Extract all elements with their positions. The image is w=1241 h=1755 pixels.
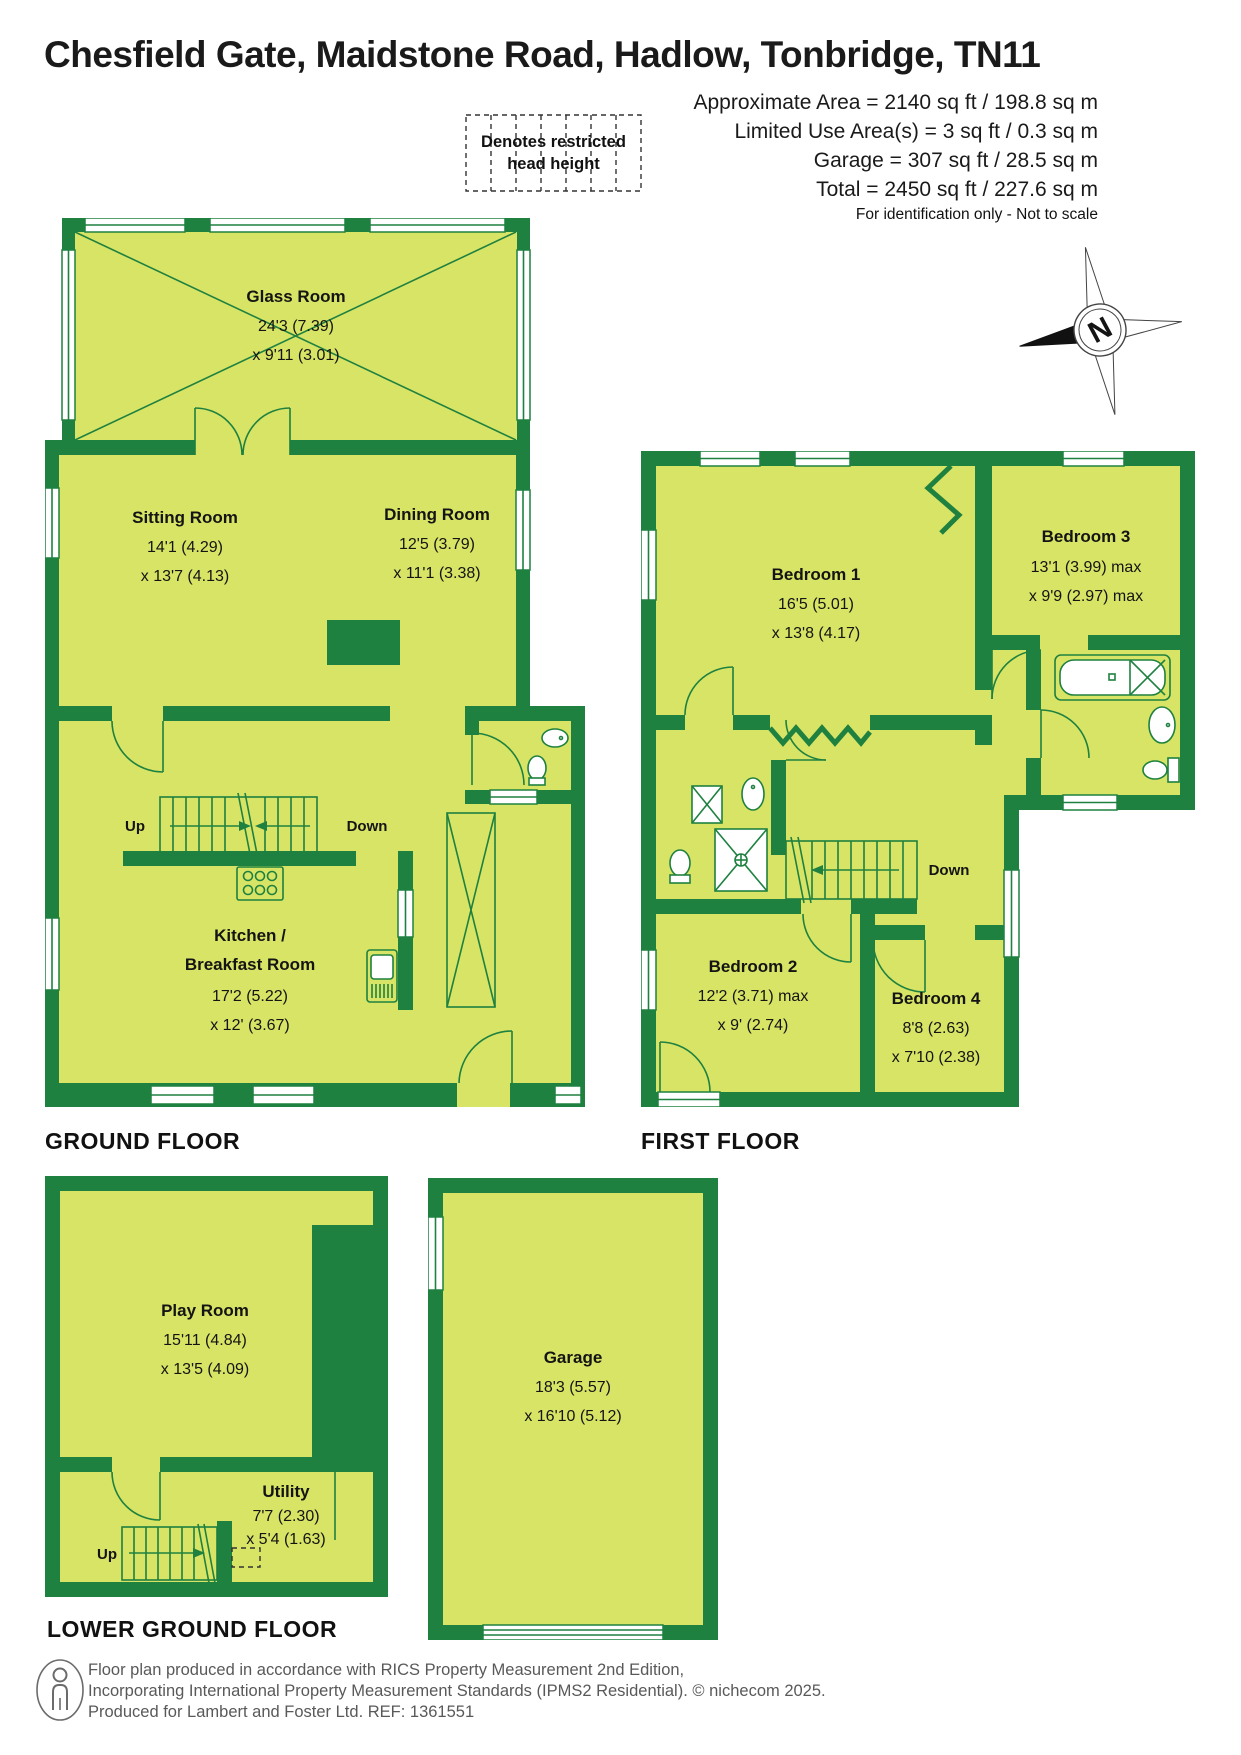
ensuite-basin-icon bbox=[742, 778, 764, 810]
svg-text:x 13'5 (4.09): x 13'5 (4.09) bbox=[161, 1361, 249, 1378]
glass-room-label: Glass Room bbox=[246, 287, 345, 306]
svg-text:17'2 (5.22): 17'2 (5.22) bbox=[212, 988, 288, 1005]
svg-text:x 9'9 (2.97) max: x 9'9 (2.97) max bbox=[1029, 588, 1143, 605]
chimney-breast bbox=[327, 620, 400, 665]
bedroom4-label: Bedroom 4 bbox=[892, 989, 981, 1008]
stairs-down-label: Down bbox=[347, 818, 388, 835]
bedroom2-label: Bedroom 2 bbox=[709, 957, 798, 976]
svg-text:16'5 (5.01): 16'5 (5.01) bbox=[778, 596, 854, 613]
lower-ground-floor-plan: Play Room 15'11 (4.84) x 13'5 (4.09) Uti… bbox=[45, 1176, 388, 1597]
svg-text:7'7 (2.30): 7'7 (2.30) bbox=[252, 1508, 319, 1525]
svg-text:12'5 (3.79): 12'5 (3.79) bbox=[399, 536, 475, 553]
legend-text: Denotes restricted head height bbox=[465, 131, 642, 175]
svg-text:15'11 (4.84): 15'11 (4.84) bbox=[163, 1332, 247, 1349]
svg-text:x 13'8 (4.17): x 13'8 (4.17) bbox=[772, 625, 860, 642]
svg-text:x 9'11 (3.01): x 9'11 (3.01) bbox=[252, 347, 339, 364]
bathroom-basin-icon bbox=[1149, 707, 1175, 743]
hob-icon bbox=[237, 867, 283, 900]
footer-line-1: Floor plan produced in accordance with R… bbox=[88, 1660, 1188, 1681]
shower-icon bbox=[715, 829, 767, 891]
ground-floor-plan: Glass Room 24'3 (7.39) x 9'11 (3.01) Sit… bbox=[45, 218, 585, 1107]
svg-text:18'3 (5.57): 18'3 (5.57) bbox=[535, 1379, 611, 1396]
sitting-room-label: Sitting Room bbox=[132, 508, 238, 527]
lower-ground-floor-label: LOWER GROUND FLOOR bbox=[47, 1616, 337, 1643]
wc-basin-icon bbox=[542, 729, 568, 747]
footer-line-2: Incorporating International Property Mea… bbox=[88, 1681, 1188, 1702]
svg-text:13'1 (3.99) max: 13'1 (3.99) max bbox=[1031, 559, 1142, 576]
svg-text:x 9' (2.74): x 9' (2.74) bbox=[718, 1017, 789, 1034]
first-floor-plan: Bedroom 1 16'5 (5.01) x 13'8 (4.17) Bedr… bbox=[641, 451, 1195, 1107]
footer-line-3: Produced for Lambert and Foster Ltd. REF… bbox=[88, 1702, 1188, 1723]
ensuite-cupboard-icon bbox=[692, 786, 722, 823]
svg-text:x 11'1 (3.38): x 11'1 (3.38) bbox=[393, 565, 480, 582]
lower-stairs-up-label: Up bbox=[97, 1546, 117, 1563]
bedroom1-label: Bedroom 1 bbox=[772, 565, 861, 584]
svg-text:x 12' (3.67): x 12' (3.67) bbox=[210, 1017, 290, 1034]
ensuite-toilet-icon bbox=[670, 850, 690, 883]
first-stairs-down-label: Down bbox=[929, 862, 970, 879]
restricted-head-height-legend: Denotes restricted head height bbox=[465, 114, 642, 192]
svg-text:12'2 (3.71) max: 12'2 (3.71) max bbox=[698, 988, 809, 1005]
kitchen-sink-icon bbox=[367, 950, 397, 1002]
bathroom-toilet-icon bbox=[1143, 758, 1179, 782]
bath-icon bbox=[1055, 655, 1170, 700]
stairs-up-label: Up bbox=[125, 818, 145, 835]
play-room-label: Play Room bbox=[161, 1301, 249, 1320]
garage-plan: Garage 18'3 (5.57) x 16'10 (5.12) bbox=[428, 1178, 718, 1640]
garage-label: Garage bbox=[544, 1348, 603, 1367]
kitchen-label: Kitchen / bbox=[214, 926, 286, 945]
svg-text:14'1 (4.29): 14'1 (4.29) bbox=[147, 539, 223, 556]
scale-disclaimer: For identification only - Not to scale bbox=[598, 206, 1098, 224]
dining-room-label: Dining Room bbox=[384, 505, 490, 524]
compass-icon: N bbox=[1010, 242, 1190, 422]
svg-text:8'8 (2.63): 8'8 (2.63) bbox=[902, 1020, 969, 1037]
svg-text:x 5'4 (1.63): x 5'4 (1.63) bbox=[246, 1531, 326, 1548]
svg-text:x 16'10 (5.12): x 16'10 (5.12) bbox=[524, 1408, 621, 1425]
svg-text:x 7'10 (2.38): x 7'10 (2.38) bbox=[892, 1049, 980, 1066]
person-icon bbox=[34, 1658, 86, 1722]
ground-floor-label: GROUND FLOOR bbox=[45, 1128, 240, 1155]
svg-text:x 13'7 (4.13): x 13'7 (4.13) bbox=[141, 568, 229, 585]
utility-label: Utility bbox=[262, 1482, 310, 1501]
garage-windows bbox=[428, 1217, 443, 1290]
approximate-area: Approximate Area = 2140 sq ft / 198.8 sq… bbox=[398, 88, 1098, 117]
recess-block bbox=[312, 1225, 388, 1460]
bedroom3-label: Bedroom 3 bbox=[1042, 527, 1131, 546]
svg-text:24'3 (7.39): 24'3 (7.39) bbox=[258, 318, 334, 335]
wc-toilet-icon bbox=[528, 756, 546, 785]
floorplan-page: { "title": "Chesfield Gate, Maidstone Ro… bbox=[0, 0, 1241, 1755]
footer-disclaimer: Floor plan produced in accordance with R… bbox=[88, 1660, 1188, 1723]
svg-text:Breakfast Room: Breakfast Room bbox=[185, 955, 315, 974]
first-floor-label: FIRST FLOOR bbox=[641, 1128, 800, 1155]
page-title: Chesfield Gate, Maidstone Road, Hadlow, … bbox=[44, 34, 1204, 76]
garage-door bbox=[483, 1625, 663, 1640]
